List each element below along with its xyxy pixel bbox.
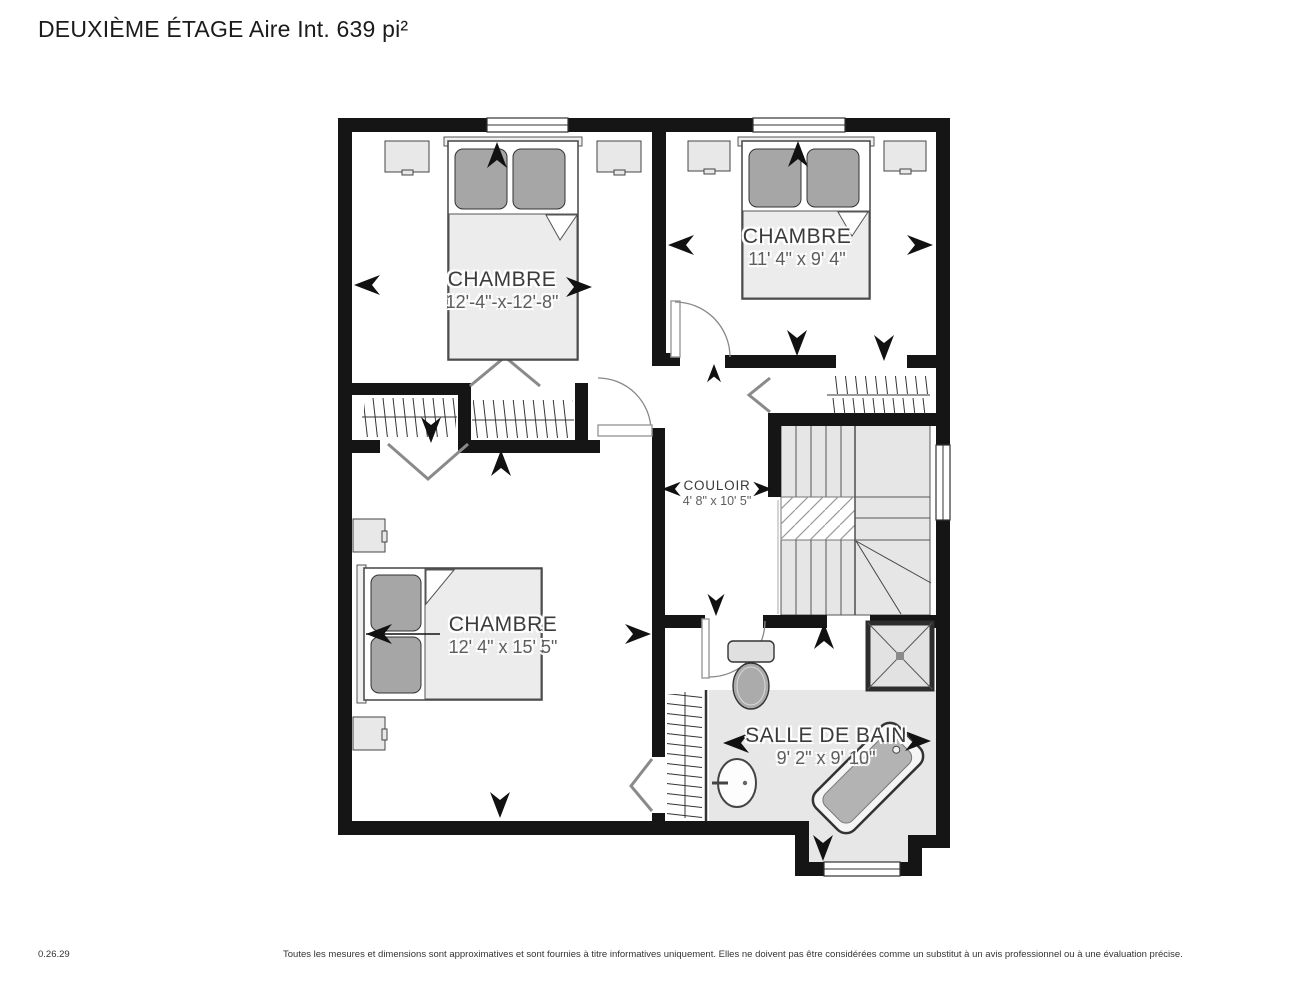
room-label-bedroom-2: CHAMBRE 11' 4" x 9' 4" — [743, 225, 852, 270]
room-name: CHAMBRE — [446, 268, 559, 292]
wall-opening — [836, 355, 907, 368]
room-label-bedroom-1: CHAMBRE 12'-4"-x-12'-8" — [446, 268, 559, 313]
wall-opening — [652, 757, 665, 813]
room-label-bedroom-3: CHAMBRE 12' 4" x 15' 5" — [449, 613, 558, 658]
window-icon — [487, 118, 568, 132]
room-name: CHAMBRE — [743, 225, 852, 249]
closet-rack-icon — [362, 397, 457, 437]
wall — [652, 428, 665, 621]
page-title: DEUXIÈME ÉTAGE Aire Int. 639 pi² — [38, 16, 408, 43]
wall — [338, 118, 352, 835]
shower-icon — [868, 623, 932, 689]
nightstand-icon — [884, 141, 926, 174]
window-icon — [753, 118, 845, 132]
wall — [338, 821, 808, 835]
room-dimensions: 12'-4"-x-12'-8" — [446, 292, 559, 313]
nightstand-icon — [597, 141, 641, 175]
nightstand-icon — [353, 519, 387, 552]
room-label-hallway: COULOIR 4' 8" x 10' 5" — [683, 478, 752, 508]
nightstand-icon — [385, 141, 429, 175]
wall — [652, 813, 665, 825]
room-dimensions: 12' 4" x 15' 5" — [449, 637, 558, 658]
window-icon — [824, 862, 900, 876]
wall — [768, 413, 936, 426]
bed-icon — [444, 137, 582, 360]
footer-version: 0.26.29 — [38, 949, 70, 960]
wall — [763, 615, 827, 628]
wall — [458, 440, 588, 453]
room-dimensions: 11' 4" x 9' 4" — [743, 249, 852, 270]
room-name: COULOIR — [683, 478, 752, 494]
wall — [652, 615, 665, 757]
wall — [652, 132, 666, 355]
nightstand-icon — [688, 141, 730, 174]
floor-plan — [0, 0, 1295, 1000]
room-name: SALLE DE BAIN — [745, 724, 907, 748]
wall — [352, 383, 470, 395]
wall — [352, 440, 380, 453]
bed-icon — [738, 137, 874, 299]
room-dimensions: 4' 8" x 10' 5" — [683, 494, 752, 508]
room-dimensions: 9' 2" x 9' 10" — [745, 748, 907, 769]
stairs-icon — [778, 425, 931, 615]
nightstand-icon — [353, 717, 387, 750]
closet-rack-icon — [667, 690, 706, 821]
room-label-bathroom: SALLE DE BAIN 9' 2" x 9' 10" — [745, 724, 907, 769]
wall — [578, 440, 600, 453]
room-name: CHAMBRE — [449, 613, 558, 637]
closet-rack-icon — [827, 376, 930, 414]
closet-rack-icon — [472, 400, 574, 440]
footer-disclaimer: Toutes les mesures et dimensions sont ap… — [283, 949, 1183, 960]
wall — [768, 413, 781, 497]
floorplan-page: DEUXIÈME ÉTAGE Aire Int. 639 pi² CHAMBRE… — [0, 0, 1295, 1000]
window-icon — [936, 445, 950, 520]
wall — [338, 118, 950, 132]
wall — [908, 835, 950, 848]
